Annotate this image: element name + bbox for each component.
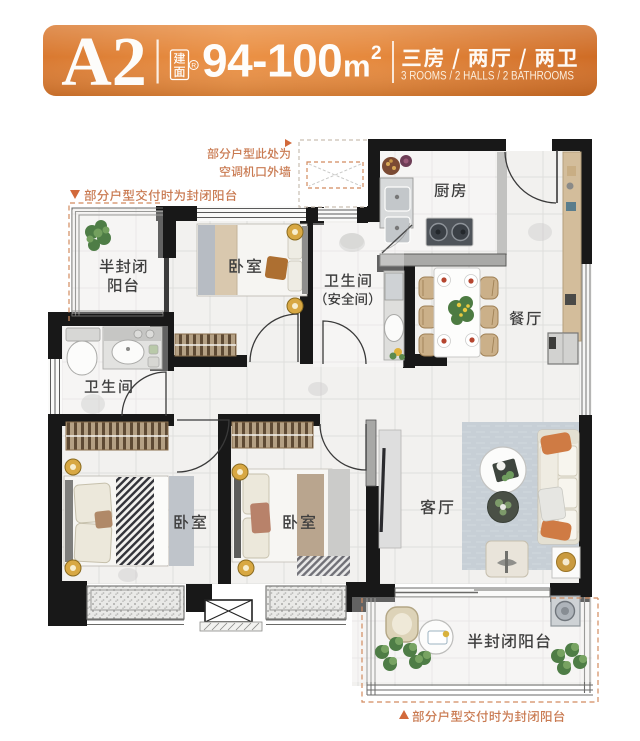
svg-text:m: m (343, 49, 371, 84)
svg-text:2: 2 (371, 43, 382, 64)
svg-text:R: R (191, 63, 196, 70)
svg-text:A2: A2 (61, 24, 147, 101)
svg-text:3 ROOMS / 2 HALLS / 2 BATHROOM: 3 ROOMS / 2 HALLS / 2 BATHROOMS (401, 69, 574, 83)
svg-text:94-100: 94-100 (202, 35, 342, 87)
